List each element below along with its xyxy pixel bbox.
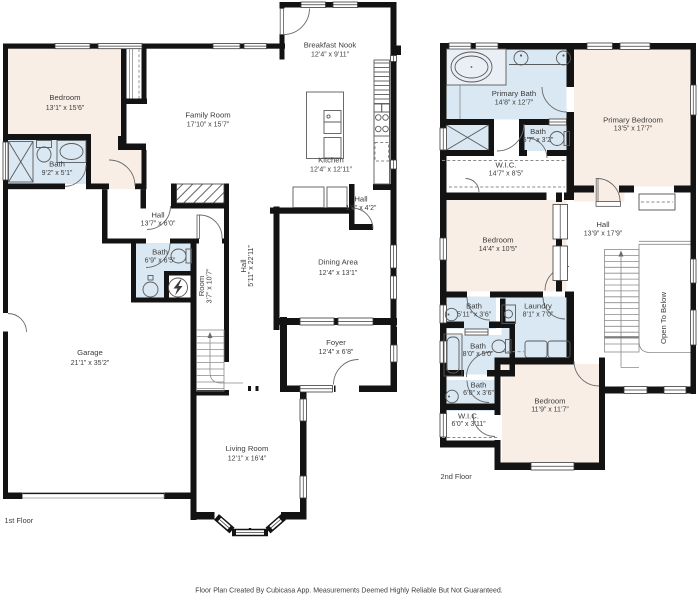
- svg-text:Room: Room: [197, 276, 206, 297]
- svg-text:Bath: Bath: [49, 160, 65, 169]
- svg-text:2nd Floor: 2nd Floor: [441, 472, 473, 481]
- svg-text:14’7” x 8’5”: 14’7” x 8’5”: [489, 170, 524, 177]
- svg-text:1st Floor: 1st Floor: [5, 516, 34, 525]
- svg-text:13’1” x 15’6”: 13’1” x 15’6”: [46, 105, 85, 112]
- svg-text:21’1” x 35’2”: 21’1” x 35’2”: [71, 360, 110, 367]
- svg-text:13’7” x 6’0”: 13’7” x 6’0”: [141, 221, 176, 228]
- svg-text:14’4” x 10’5”: 14’4” x 10’5”: [479, 246, 518, 253]
- svg-text:Breakfast Nook: Breakfast Nook: [304, 41, 357, 50]
- svg-text:Laundry: Laundry: [524, 302, 552, 311]
- svg-text:5’11” x 22’11”: 5’11” x 22’11”: [248, 245, 255, 287]
- svg-text:9’2” x 5’1”: 9’2” x 5’1”: [42, 170, 73, 177]
- svg-text:3’7” x 10’7”: 3’7” x 10’7”: [207, 268, 214, 303]
- svg-text:12’4” x 9’11”: 12’4” x 9’11”: [311, 52, 350, 59]
- svg-text:Bath: Bath: [471, 381, 487, 390]
- svg-text:11’9” x 11’7”: 11’9” x 11’7”: [531, 407, 569, 414]
- svg-text:6’0” x 3’6”: 6’0” x 3’6”: [463, 390, 494, 397]
- svg-text:Bath: Bath: [466, 302, 482, 311]
- svg-text:Hall: Hall: [151, 211, 165, 220]
- svg-text:W.I.C.: W.I.C.: [458, 412, 479, 421]
- svg-text:Open To Below: Open To Below: [659, 292, 668, 344]
- svg-text:Foyer: Foyer: [326, 338, 346, 347]
- svg-text:6’0” x 3’11”: 6’0” x 3’11”: [451, 421, 486, 428]
- svg-text:12’1” x 16’4”: 12’1” x 16’4”: [228, 456, 267, 463]
- svg-text:17’10” x 15’7”: 17’10” x 15’7”: [187, 121, 230, 128]
- svg-text:1’0” x 4’2”: 1’0” x 4’2”: [346, 205, 377, 212]
- svg-text:5’11” x 3’6”: 5’11” x 3’6”: [457, 312, 492, 319]
- svg-text:Garage: Garage: [77, 348, 103, 357]
- svg-text:14’8” x 12’7”: 14’8” x 12’7”: [495, 99, 534, 106]
- svg-text:Floor Plan Created By Cubicasa: Floor Plan Created By Cubicasa App. Meas…: [195, 588, 502, 595]
- svg-text:5’7” x 3’2”: 5’7” x 3’2”: [523, 137, 554, 144]
- svg-text:Living Room: Living Room: [226, 444, 269, 453]
- svg-text:12’4” x 12’11”: 12’4” x 12’11”: [310, 167, 353, 174]
- svg-text:Primary Bedroom: Primary Bedroom: [603, 116, 663, 125]
- svg-text:13’9” x 17’9”: 13’9” x 17’9”: [584, 230, 623, 237]
- svg-text:Bath: Bath: [530, 127, 546, 136]
- svg-text:6’9” x 6’5”: 6’9” x 6’5”: [145, 258, 176, 265]
- svg-text:Family Room: Family Room: [185, 111, 230, 120]
- svg-text:8’1” x 7’0”: 8’1” x 7’0”: [523, 312, 554, 319]
- svg-text:Bedroom: Bedroom: [534, 397, 565, 406]
- svg-text:12’4” x 6’8”: 12’4” x 6’8”: [319, 349, 354, 356]
- svg-text:Hall: Hall: [354, 194, 368, 203]
- svg-text:Dining Area: Dining Area: [318, 258, 358, 267]
- svg-text:Bedroom: Bedroom: [49, 93, 80, 102]
- svg-text:Hall: Hall: [596, 220, 610, 229]
- svg-text:Kitchen: Kitchen: [318, 156, 344, 165]
- svg-text:Bedroom: Bedroom: [482, 236, 513, 245]
- svg-text:Bath: Bath: [152, 248, 168, 257]
- svg-text:W.I.C.: W.I.C.: [496, 161, 517, 170]
- svg-text:12’4” x 13’1”: 12’4” x 13’1”: [319, 270, 358, 277]
- svg-text:Bath: Bath: [470, 342, 486, 351]
- svg-text:Primary Bath: Primary Bath: [492, 89, 536, 98]
- svg-text:13’5” x 17’7”: 13’5” x 17’7”: [614, 126, 653, 133]
- svg-text:8’0” x 5’0”: 8’0” x 5’0”: [463, 351, 494, 358]
- svg-text:Hall: Hall: [239, 259, 248, 273]
